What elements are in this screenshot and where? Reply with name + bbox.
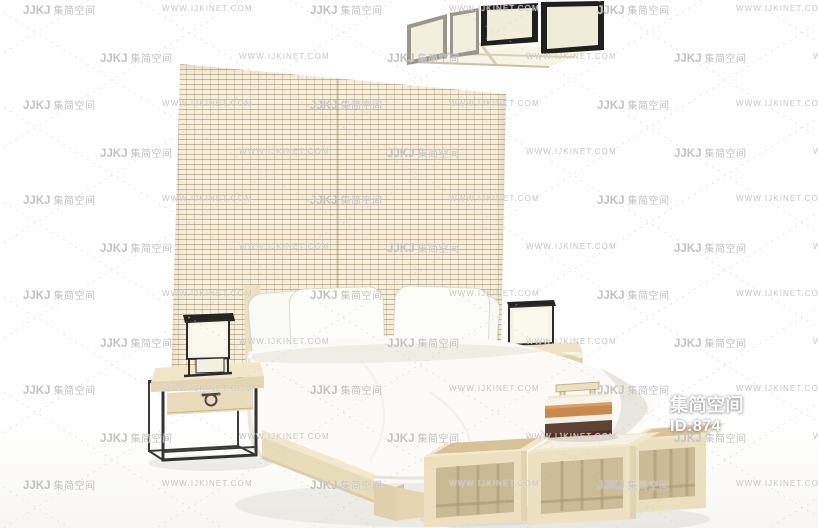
watermark-logo-text: JJKJ集简空间 [100,50,173,65]
watermark-url-text: WWW.IJKINET.COM [449,384,540,393]
watermark-logo-text: JJKJ集简空间 [597,97,670,112]
watermark-logo-text: JJKJ集简空间 [23,477,96,492]
watermark-logo-text: JJKJ集简空间 [310,2,383,17]
watermark-logo-text: JJKJ集简空间 [310,477,383,492]
watermark-logo-text: JJKJ集简空间 [387,430,460,445]
watermark-logo-text: JJKJ集简空间 [100,430,173,445]
watermark-logo-text: JJKJ集简空间 [100,240,173,255]
watermark-url-text: WWW.IJKINET.COM [736,479,818,488]
watermark-url-text: WWW.IJKINET.COM [813,147,818,156]
watermark-logo-text: JJKJ集简空间 [100,525,173,528]
floor-shadows [148,455,710,528]
watermark-url-text: WWW.IJKINET.COM [813,242,818,251]
watermark-logo-text: JJKJ集简空间 [23,382,96,397]
watermark-url-text: WWW.IJKINET.COM [813,52,818,61]
watermark-url-text: WWW.IJKINET.COM [526,52,617,61]
watermark-url-text: WWW.IJKINET.COM [736,4,818,13]
headboard-screen-lattice [170,64,506,386]
watermark-logo-text: JJKJ集简空间 [674,240,747,255]
watermark-logo-text: JJKJ集简空间 [674,50,747,65]
watermark-logo-text: JJKJ集简空间 [387,50,460,65]
watermark-url-text: WWW.IJKINET.COM [736,384,818,393]
watermark-url-text: WWW.IJKINET.COM [813,432,818,441]
watermark-logo-text: JJKJ集简空间 [597,2,670,17]
id-watermark-brand: 集简空间 [670,391,744,417]
watermark-logo-text: JJKJ集简空间 [100,145,173,160]
watermark-url-text: WWW.IJKINET.COM [526,337,617,346]
stool-left [424,437,549,527]
watermark-logo-text: JJKJ集简空间 [674,145,747,160]
watermark-url-text: WWW.IJKINET.COM [162,479,253,488]
watermark-logo-text: JJKJ集简空间 [597,382,670,397]
watermark-url-text: WWW.IJKINET.COM [526,432,617,441]
watermark-url-text: WWW.IJKINET.COM [736,99,818,108]
nightstand-right [515,342,583,376]
watermark-logo-text: JJKJ集简空间 [23,192,96,207]
storage-box [542,382,618,442]
watermark-logo-text: JJKJ集简空间 [674,335,747,350]
id-watermark-number: ID:874 [670,418,744,436]
watermark-url-text: WWW.IJKINET.COM [813,337,818,346]
stool-middle [528,432,660,525]
watermark-url-text: WWW.IJKINET.COM [449,479,540,488]
watermark-logo-text: JJKJ集简空间 [674,525,747,528]
watermark-url-text: WWW.IJKINET.COM [449,4,540,13]
watermark-url-text: WWW.IJKINET.COM [162,4,253,13]
watermark-logo-text: JJKJ集简空间 [23,97,96,112]
watermark-url-text: WWW.IJKINET.COM [736,194,818,203]
watermark-url-text: WWW.IJKINET.COM [736,289,818,298]
watermark-logo-text: JJKJ集简空间 [23,287,96,302]
watermark-logo-text: JJKJ集简空间 [387,525,460,528]
watermark-url-text: WWW.IJKINET.COM [526,147,617,156]
stool-right [628,423,726,513]
furniture-render-canvas: JJKJ集简空间WWW.IJKINET.COMJJKJ集简空间WWW.IJKIN… [0,0,818,528]
watermark-url-text: WWW.IJKINET.COM [239,432,330,441]
watermark-logo-text: JJKJ集简空间 [597,477,670,492]
watermark-logo-text: JJKJ集简空间 [674,430,747,445]
watermark-url-text: WWW.IJKINET.COM [526,242,617,251]
watermark-logo-text: JJKJ集简空间 [597,192,670,207]
bed-platform [262,430,430,521]
watermark-logo-text: JJKJ集简空间 [597,287,670,302]
watermark-logo-text: JJKJ集简空间 [23,2,96,17]
ceiling-lamp [407,1,604,67]
id-watermark: 集简空间 ID:874 [670,391,744,436]
